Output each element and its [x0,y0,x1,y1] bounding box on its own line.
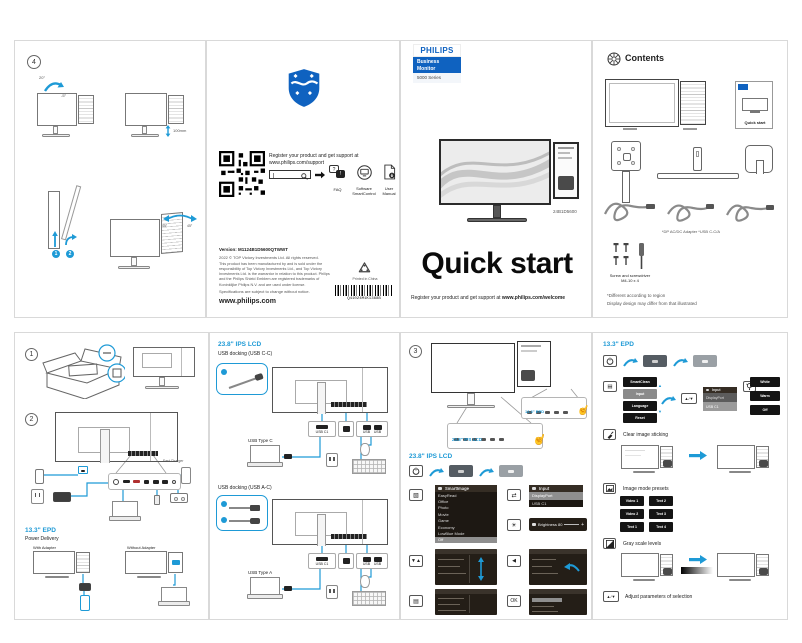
screen-wallpaper [441,141,549,203]
osd-row [438,604,460,605]
menu-icon [706,389,709,391]
philips-wordmark: PHILIPS [413,44,461,57]
software-label: Software SmartControl [347,187,381,197]
osd-row [532,573,558,574]
step-3-label: 3 [414,348,418,355]
power-icon [606,357,614,365]
epd-updown-key: ▲/▼ [681,393,697,404]
ghost-line [625,450,645,451]
usb-label: USB [363,562,370,566]
vesa-hole [617,147,621,151]
plug-pin [35,493,37,497]
panel-osd: 3 13.3" EPD ☝ 23.8" IPS LCD ☝ 23.8" IPS … [400,332,592,620]
monitor-rear-illustration [272,499,388,545]
packing-mark [683,128,697,130]
laptop-base [109,516,141,521]
epd-side-illustration [680,81,706,125]
faq-icon: ? ! [329,165,346,179]
pivot-step-2: 2 [66,250,74,258]
curved-arrow-icon [661,395,677,405]
step-number: 3 [409,345,422,358]
tilt-max-label: 20° [39,75,45,80]
monitor-illustration [125,93,167,126]
barcode-number: Q41024M1K1368B [335,297,393,301]
grayscale-gradient-bar [681,567,713,574]
curved-arrow-icon [623,357,639,367]
menu-icon: ▤ [413,598,419,605]
smartimage-menu: SmartImage EasyRead Office Photo Movie G… [435,485,497,543]
usb-ports-box: USB USB [356,421,388,437]
epd-screen-button-dark [643,355,667,367]
stand-base [633,471,655,473]
printed-label: Printed in China [345,277,385,281]
step-label: 4 [32,59,36,66]
plug-pin [329,457,331,461]
power-icon [412,467,420,475]
product-epd-illustration [553,142,579,199]
osd-screenshot [435,589,497,615]
stand-base [447,405,495,408]
card-title: Quick start [736,120,774,125]
osd-header [529,589,587,594]
vesa-hole [631,147,635,151]
panel-cover: PHILIPS Business Monitor 5000 Series 24B… [400,40,592,318]
slider-track [564,524,579,525]
osd-row [532,559,556,560]
pivot-step-1-label: 1 [55,251,58,257]
step-2-label: 2 [30,416,34,423]
stand-neck [53,126,58,134]
button-mark [458,470,464,473]
badge-line-2: Monitor [417,66,457,73]
laptop-base [247,594,283,599]
osd-selected-row [532,598,562,602]
contents-heading: Contents [625,53,664,63]
brightness-slider: Brightness 80 + [529,518,587,531]
usb-c-cable-icon [227,372,265,392]
series-label: 5000 Series [413,73,461,83]
epd-image [759,460,768,467]
brightness-icon: ☀ [511,522,516,529]
stand-column [100,429,110,463]
osd-row [532,566,552,567]
lan-port-icon [343,558,350,564]
osd-header [435,589,497,594]
menu-item-selected: Off [435,537,497,543]
power-strip-illustration [170,493,188,503]
osd-divider [469,555,470,583]
stand-neck [159,377,165,386]
usb-c-port-icon [123,480,130,483]
plug-pin [333,589,335,593]
menu-key: ▤ [409,595,423,607]
fast-charger-illustration [181,467,191,484]
input-icon: ⇄ [511,492,516,499]
disclaimer-text: Specifications are subject to change wit… [219,289,310,294]
monitor-illustration [717,553,755,577]
vesa-plate [611,141,641,171]
vesa-hole [617,161,621,165]
audio-jack-icon [172,480,176,484]
epd-side-illustration [76,552,90,573]
philips-shield-logo [286,67,322,109]
osd-header [529,549,587,554]
lcd-buttons-callout: 23.8" IPS LCD [447,423,543,449]
usb-label: USB [374,562,381,566]
back-arrow-icon [563,561,581,573]
smartimage-key: ▧ [409,489,423,501]
osd-row [532,611,558,612]
plug-pin [333,457,335,461]
card-logo [738,84,748,90]
brightness-value: Brightness 80 [538,522,562,527]
epd-line [558,152,570,154]
stand-base [729,579,751,581]
curved-arrow-icon [673,357,689,367]
stand-column [317,382,326,414]
scroll-up-icon: ▲ [658,383,662,388]
power-adapter-illustration [53,492,71,502]
step-number: 2 [25,413,38,426]
clip-notch [756,160,764,174]
usb-c1-port-box: USB C1 [308,553,336,569]
back-label: ◀ [512,558,516,564]
curved-arrow-icon [479,467,495,477]
search-box [269,170,311,179]
osd-button-icon [545,411,550,414]
height-range-label: 100mm [173,128,186,133]
mouse-illustration [360,443,370,456]
rear-divider [150,413,151,461]
brightness-key: ☀ [507,519,521,531]
cover-register-line: Register your product and get support at… [411,295,587,301]
power-button-key [409,465,423,477]
epd-image [521,370,535,381]
laptop-base [158,601,190,606]
scroll-down-icon: ▼ [658,409,662,414]
height-arrow-icon [165,125,171,137]
updown-label: ▲/▼ [684,396,693,401]
clear-key [603,429,616,440]
menu-icon [532,487,536,490]
copyright-text: 2022 © TOP Victory Investments Ltd. All … [219,255,319,260]
osd-screen-button-dark [449,465,473,477]
monitor-illustration [33,551,75,574]
epd-line [558,147,574,149]
preset-button: Text 1 [620,522,644,532]
ok-label: OK [510,598,517,604]
vesa-latch [623,153,631,161]
cable-illustration [723,198,777,224]
clean-icon [606,431,614,439]
stand-base [45,576,69,578]
epd-menu-item: SmartClean [623,377,657,387]
callout-dot [221,501,227,507]
quick-start-card: Quick start [735,81,773,129]
panel-docking: 23.8" IPS LCD USB docking (USB C-C) USB … [209,332,400,620]
screen-inner [609,83,675,123]
footnote-1: *Different according to region [607,293,665,298]
button-mark [702,360,708,363]
usb-port-icon [162,480,168,484]
user-manual-icon [383,164,396,180]
panel-epd: 13.3" EPD ▤ SmartClean Input Language Re… [592,332,788,620]
arrow-right-icon [315,171,325,179]
recycle-icon [357,261,372,275]
stand-neck [493,205,501,218]
usb-label: USB [374,430,381,434]
stand-riser [693,147,702,171]
swivel-left-label: 45° [162,224,167,228]
epd-image [759,568,768,575]
callout-dot [221,517,227,523]
transition-arrow-icon [689,451,707,460]
osd-screenshot [435,549,497,585]
port-glyph [81,470,85,472]
laptop-base [247,462,283,467]
business-monitor-badge: Business Monitor [413,57,461,73]
adapter-illustration [79,583,91,591]
stand-neck [467,393,475,405]
epd-heading: 13.3" EPD [25,527,56,534]
stand-base [729,471,751,473]
cable-callout [216,495,268,531]
stand-base [467,218,527,222]
port-strip [128,451,158,456]
monitor-rear-illustration [272,367,388,413]
frontlight-option: Off [750,405,780,415]
menu-icon: ▤ [607,384,612,390]
osd-header [435,549,497,554]
preset-button: Text 3 [649,509,673,519]
step-1-label: 1 [30,351,34,358]
slider-icon [532,523,536,526]
phone-illustration [35,469,44,484]
osd-row [438,610,466,611]
updown-key: ▼▲ [409,555,423,567]
software-label-2: SmartControl [347,192,381,197]
barcode [335,285,393,296]
usb-plug-icon [284,586,292,591]
laptop-type-label: USB Type A [248,570,272,575]
osd-button-icon [563,411,568,414]
button-mark [508,470,514,473]
step-number: 1 [25,348,38,361]
usb-c-port-icon [78,466,88,474]
contents-icon [607,52,621,66]
power-delivery-label: Power Delivery [25,536,59,542]
usb-c1-label: USB C1 [316,430,329,434]
swivel-arrow-icon [163,211,197,223]
stand-neck [142,126,147,134]
legal-text: This product has been manufactured by an… [219,262,331,288]
faq-bubble-exclaim: ! [336,170,345,178]
stand-column [317,514,326,546]
lan-port-box [338,421,354,437]
rear-divider [362,500,363,544]
epd-side-illustration [168,552,183,573]
battery-icon [172,560,180,565]
transition-arrow-icon [689,555,707,564]
usb-plug-icon [284,454,292,459]
stand-base [118,266,150,269]
button-mark [652,360,658,363]
card-monitor-base [750,111,760,113]
qr-code [219,151,265,197]
stand-neck [131,257,137,266]
epd-line [521,350,537,352]
epd-menu: SmartClean Input Language Reset ▲ ▼ [623,377,657,423]
adapter-note: *DP AC/DC Adapter *USB C-C/A [611,229,771,234]
register-line-1: Register your product and get support at [269,153,394,159]
fast-charger-label: Fast Charger [163,459,183,463]
epd-side-illustration [660,554,673,576]
osd-row [438,573,466,574]
preset-button: Text 2 [649,496,673,506]
usb-c1-label: USB C1 [316,562,329,566]
osd-row [532,606,554,607]
epd-side-illustration [660,446,673,468]
osd-row [438,566,460,567]
usb-port-icon [153,480,159,484]
power-port-icon [113,479,119,485]
rear-divider [181,348,182,376]
usb-ports-box: USB USB [356,553,388,569]
usb-c-port-icon [316,557,328,561]
ghost-line [625,455,641,456]
input-key: ⇄ [507,489,521,501]
unboxing-illustration [41,343,125,399]
menu-icon [438,487,442,490]
stand-base [131,134,159,137]
monitor-illustration [621,445,659,469]
osd-button-icon [554,411,559,414]
cable-callout [216,363,268,395]
usb-a-c-cable-icon [228,500,266,528]
packing-mark [623,128,637,130]
usb-c-port-icon [316,425,328,429]
panel-registration: Register your product and get support at… [206,40,400,318]
smartcontrol-icon [357,165,372,180]
model-number: 24B1D5600 [553,209,577,214]
adjust-label: Adjust parameters of selection [625,594,692,600]
step-number: 4 [27,55,41,69]
text-cursor [273,173,274,178]
callout-lcd-label: 23.8" IPS LCD [452,437,482,442]
epd-input-submenu: Input DisplayPort USB C1 [703,387,737,411]
osd-screenshot [529,589,587,615]
lan-port-icon [144,480,149,484]
docking-heading: 23.8" IPS LCD [218,341,261,348]
brand-text: PHILIPS [420,46,453,55]
tilt-arrow-icon [43,79,65,93]
updown-label: ▼▲ [411,558,421,564]
lan-port-icon [343,426,350,432]
wall-plug-illustration [31,489,44,504]
rear-divider [362,368,363,412]
monitor-illustration [431,343,515,393]
osd-screen-button-gray [499,465,523,477]
preset-button: Text 4 [649,522,673,532]
lan-port-box [338,553,354,569]
card-monitor [742,98,768,111]
input-menu: Input DisplayPort USB C1 [529,485,583,507]
power-button-key [603,355,617,367]
epd-side-illustration [517,341,551,387]
epd-side-illustration [756,446,769,468]
scroll-arrow-icon [477,557,485,581]
monitor-rear-illustration [133,347,195,377]
ok-key: OK [507,595,521,607]
epd-side-illustration [78,95,94,124]
epd-menu-item-selected: Input [623,389,657,399]
keyboard-illustration [352,459,386,474]
stand-base [633,579,655,581]
input-header: Input [539,486,549,491]
website-text: www.philips.com [219,298,276,305]
cable-illustration [665,198,717,224]
quick-start-sheet: { "colors": {"accent":"#1e9ad6","brand":… [0,0,802,643]
monitor-illustration [717,445,755,469]
osd-row [438,598,464,599]
stand-base [42,134,70,137]
frontlight-option: White [750,377,780,387]
panel-adjustment: 4 20° -5° 100mm 1 2 45° 45° [14,40,206,318]
stand-base-part [657,173,739,179]
epd-side-illustration [756,554,769,576]
smartimage-icon: ▧ [413,492,419,499]
back-key: ◀ [507,555,521,567]
epd-screen-button-gray [693,355,717,367]
usb-c1-port-box: USB C1 [308,421,336,437]
epd-updown-key: ▲/▼ [603,591,619,602]
curved-arrow-icon [429,467,445,477]
stand-base [137,576,161,578]
monitor-rear-large [55,412,178,462]
product-screen-illustration [439,139,551,205]
panel-setup: 1 2 Fast Charger [14,332,209,620]
stand-base [145,386,179,389]
grayscale-label: Gray scale levels [623,541,661,547]
rear-recess [142,353,172,368]
cable-clip [745,145,773,173]
phone-illustration [80,595,90,611]
epd-menu-item: Language [623,401,657,411]
cable-illustration [601,196,657,224]
ports-callout [108,473,181,490]
pivot-step-1: 1 [52,250,60,258]
presets-key [603,483,616,494]
page-title: Quick start [401,247,593,281]
osd-button-icon [490,438,495,441]
preset-button: Video 2 [620,509,644,519]
menu-item-selected: DisplayPort [529,492,583,500]
image-mode-icon [606,485,614,492]
pivot-step-2-label: 2 [69,251,72,257]
usb-stick-illustration [154,495,160,505]
swivel-right-label: 45° [187,224,192,228]
screw-note: Screw and screwdriver M4-10 x 4 [599,273,661,283]
preset-button: Video 1 [620,496,644,506]
epd-menu-key: ▤ [603,381,617,392]
up-arrow-icon [52,231,58,247]
version-text: Version: M1124B1D5600QTWWT [219,247,288,252]
outlet [174,497,178,501]
monitor-illustration [110,219,160,257]
menu-item: USB C1 [529,500,583,508]
epd-side-illustration [168,95,184,124]
osd-divider [469,595,470,613]
